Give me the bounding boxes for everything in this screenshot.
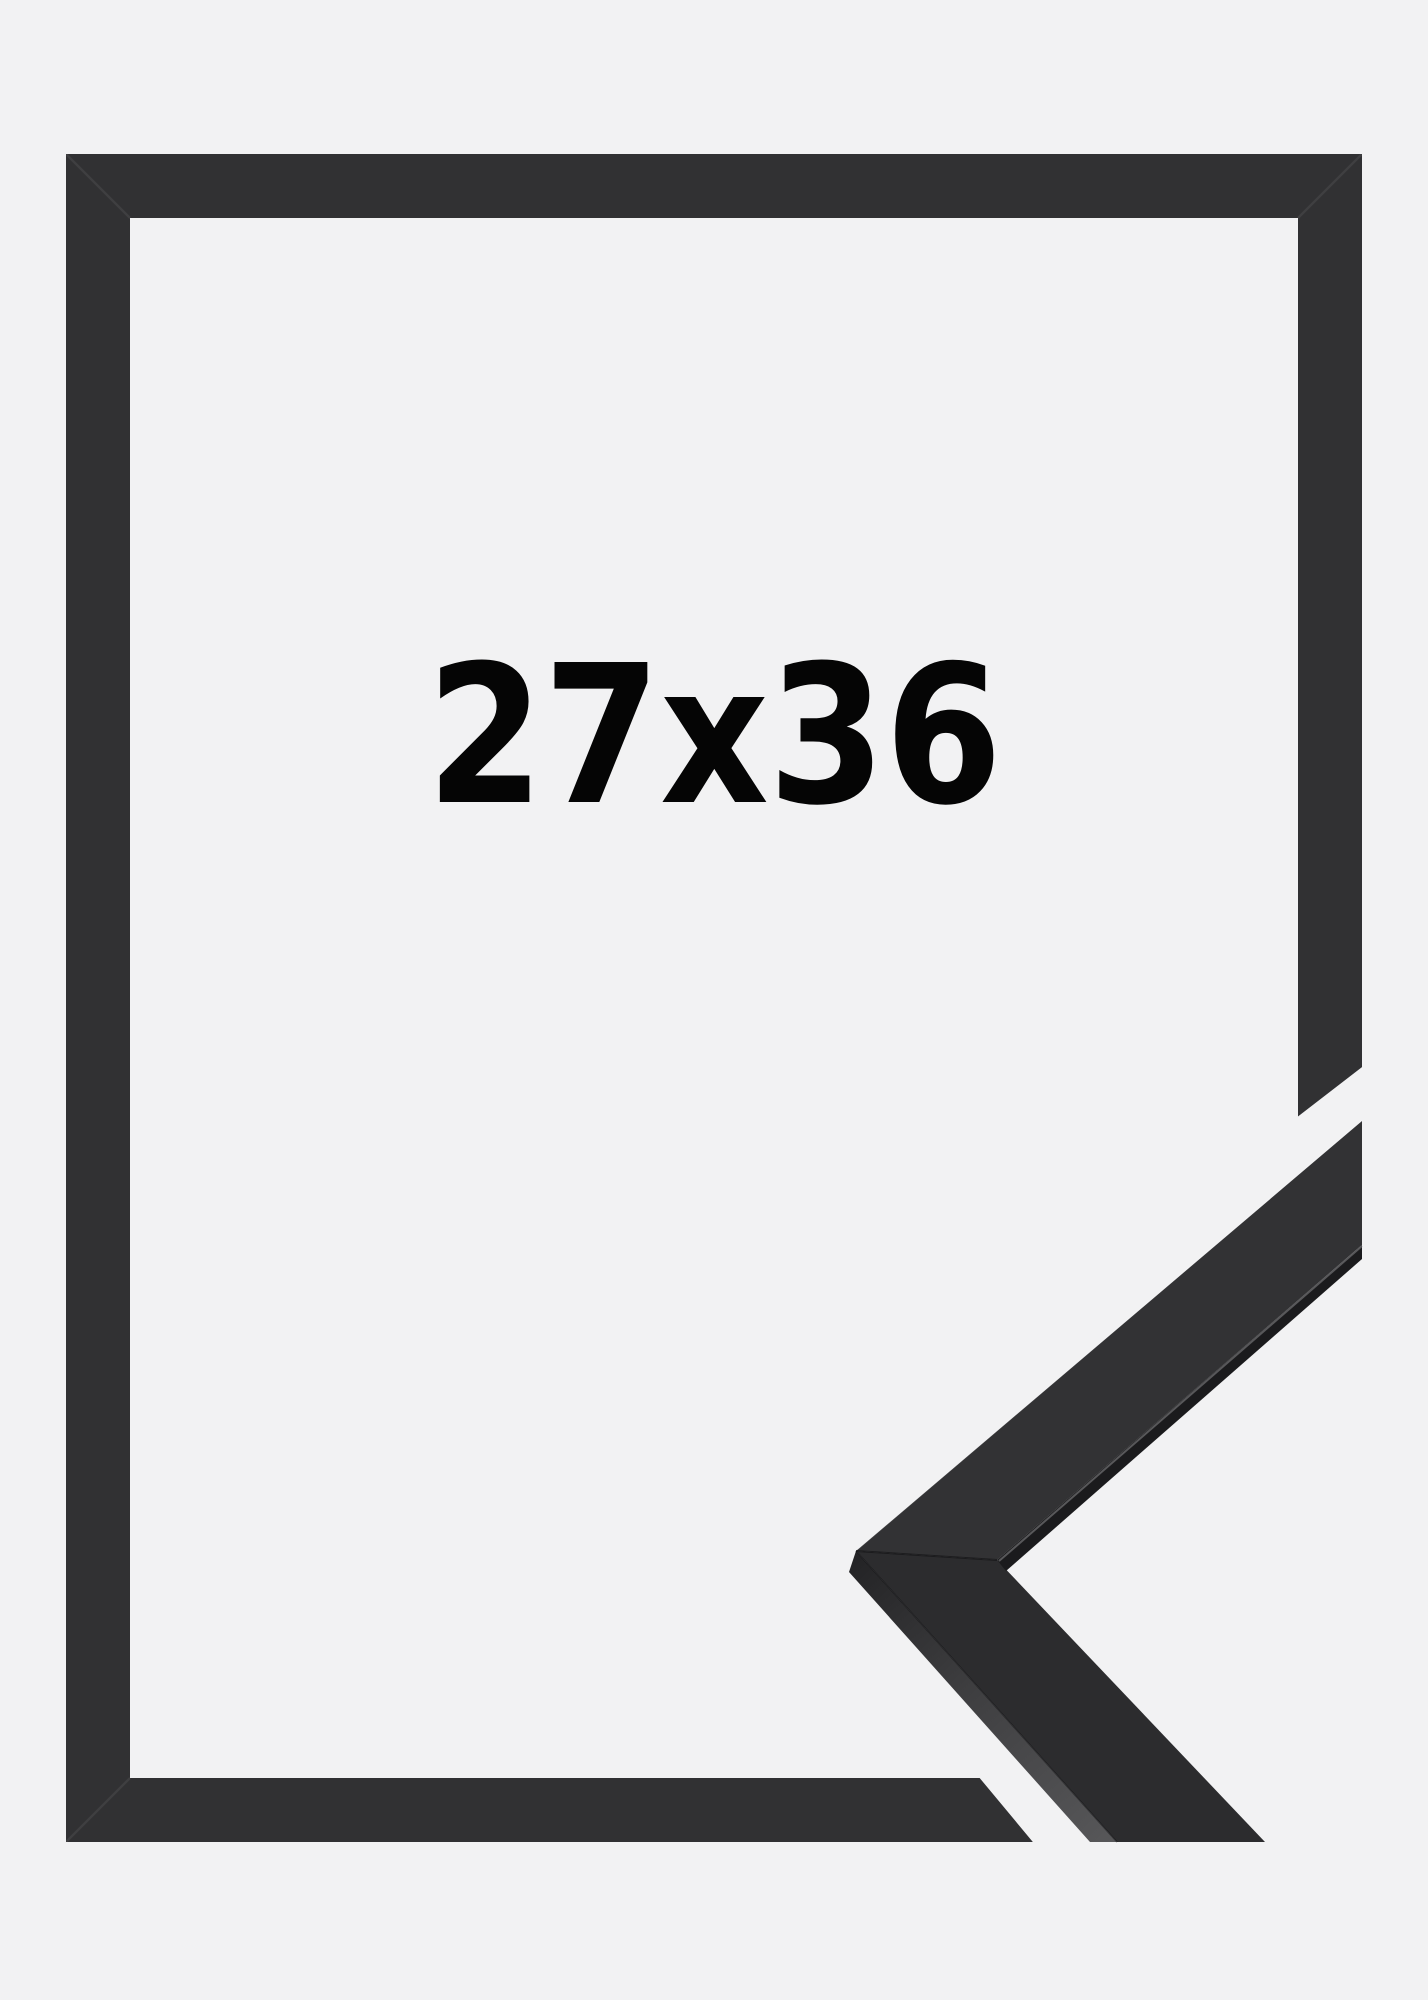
product-photo: 27x36 xyxy=(0,0,1428,2000)
profile-edge-highlight xyxy=(858,1120,1362,1549)
profile-top-face-upper-arm xyxy=(856,1121,1362,1560)
frame-border xyxy=(66,154,1362,1842)
size-label: 27x36 xyxy=(86,641,1343,833)
corner-profile-piece xyxy=(849,1120,1362,1842)
picture-frame-image xyxy=(0,0,1428,2000)
